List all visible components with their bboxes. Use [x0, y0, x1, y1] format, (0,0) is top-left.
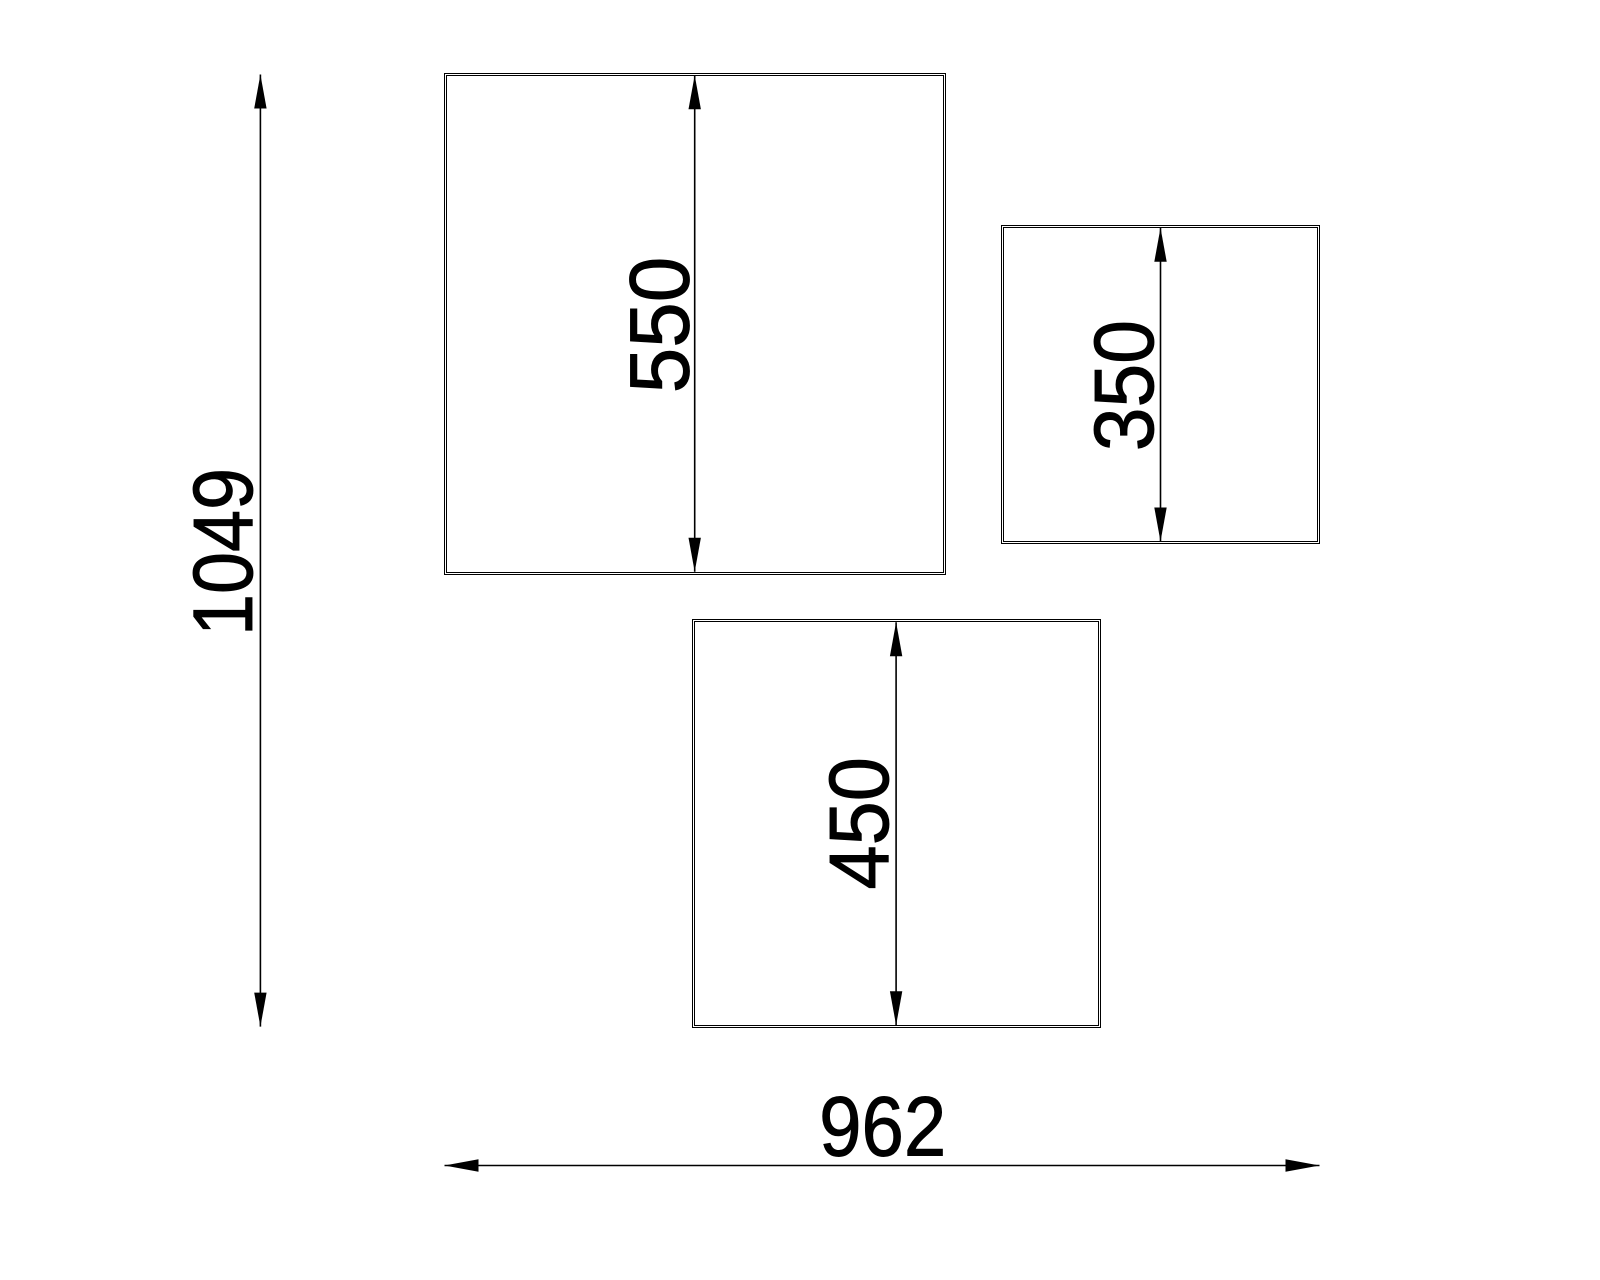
svg-text:350: 350	[1077, 320, 1171, 451]
svg-text:962: 962	[819, 1080, 946, 1174]
svg-text:550: 550	[612, 257, 706, 394]
svg-text:450: 450	[812, 757, 906, 889]
svg-text:1049: 1049	[176, 468, 270, 636]
